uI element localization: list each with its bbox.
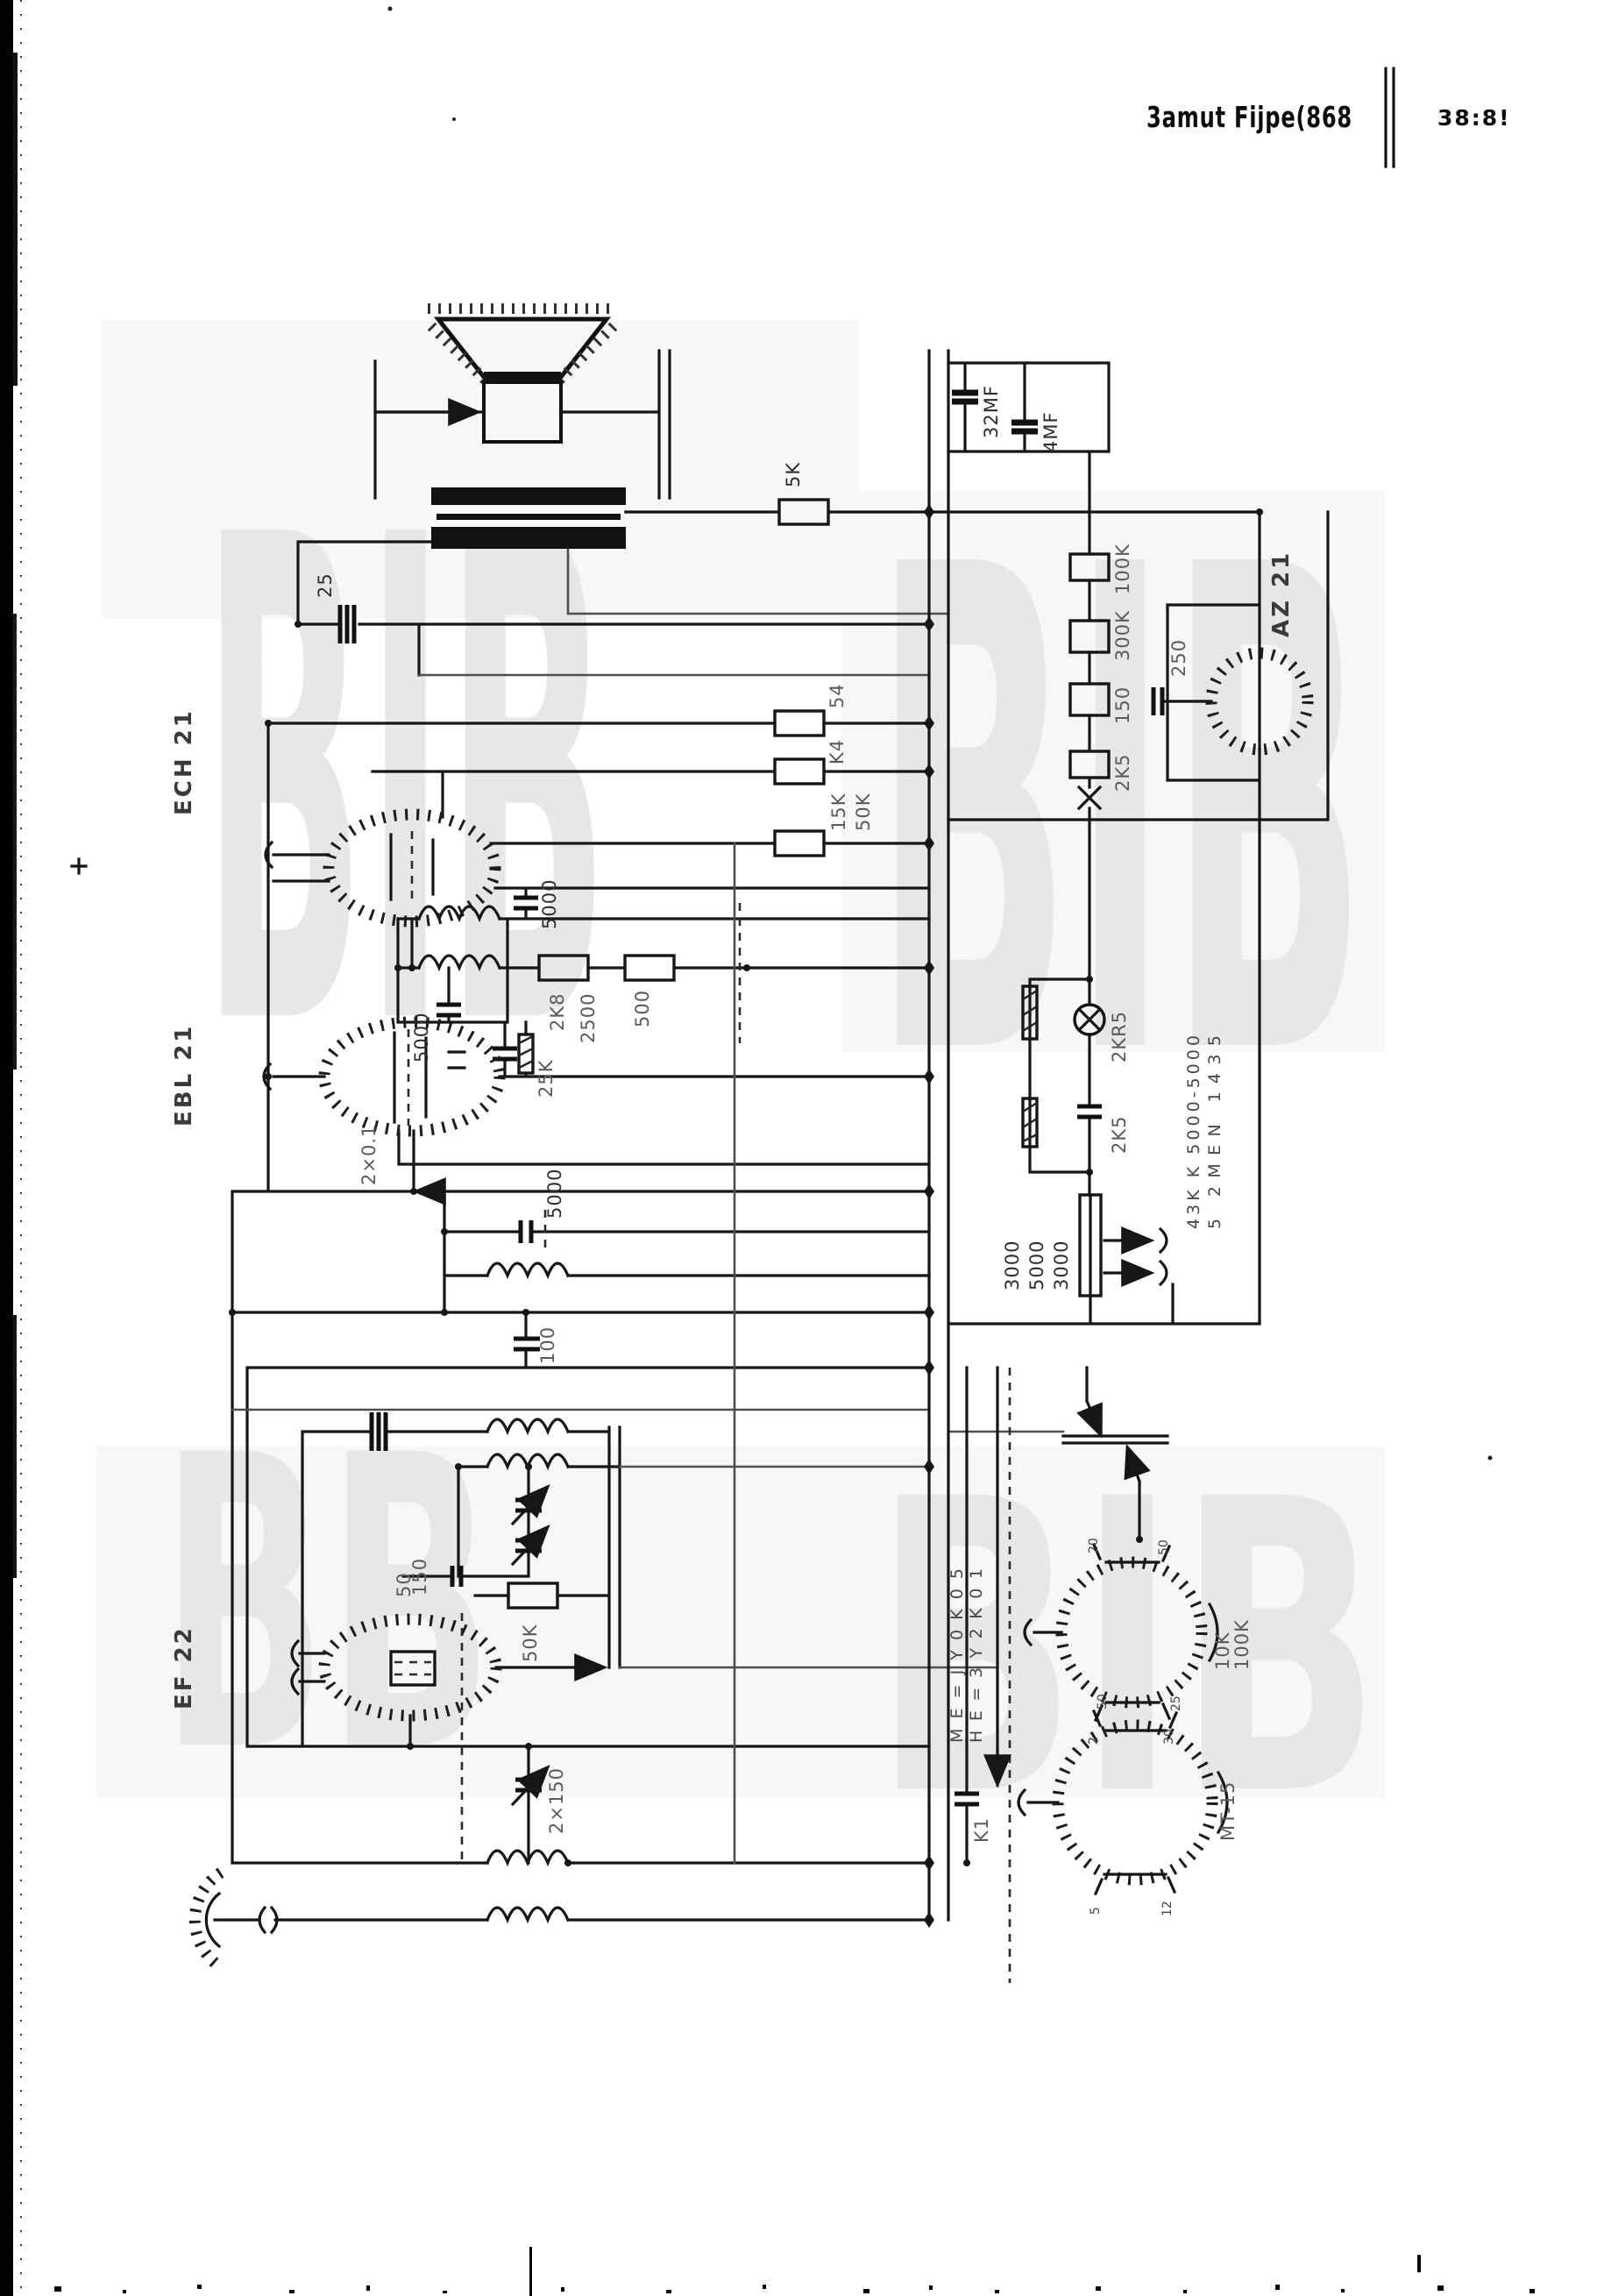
value-rect-cap: 250 (1168, 639, 1189, 677)
socket-b-pin2: 25 (1169, 1695, 1183, 1711)
socket-a-pin3: 2 (1087, 1737, 1101, 1745)
value-chain3: 150 (1112, 686, 1133, 724)
value-r50kb: 50K (520, 1624, 541, 1662)
tube2-label: EBL 21 (171, 1024, 197, 1127)
plus-speck (72, 859, 86, 873)
rectifier-label: AZ 21 (1268, 551, 1295, 637)
socket-b-pin3: 5 (1089, 1907, 1103, 1915)
socket-b-side: MT-15 (1217, 1781, 1238, 1841)
socket-a-pin1: 20 (1087, 1538, 1101, 1553)
value-c50: 50 (394, 1572, 415, 1597)
value-r15k: 15K (828, 793, 849, 831)
value-r2k8: 2K8 (547, 993, 568, 1032)
voltage-divider (1080, 1195, 1167, 1296)
value-chain4: 2K5 (1112, 754, 1133, 793)
value-c5000b: 5000 (411, 1013, 432, 1063)
value-rk4: K4 (827, 739, 848, 764)
socket-b-pin4: 12 (1160, 1901, 1175, 1916)
value-t2-cath: 2×0.1 (358, 1125, 380, 1185)
value-div3: 3000 (1051, 1240, 1072, 1290)
value-c2500: 2500 (578, 993, 599, 1043)
tube1-label: ECH 21 (171, 708, 197, 815)
header-page-number: 38:8! (1437, 105, 1511, 131)
value-r50k: 50K (853, 793, 874, 831)
tube3-label: EF 22 (171, 1625, 197, 1710)
socket-a-pin2: 50 (1157, 1539, 1171, 1555)
output-transformer (431, 487, 626, 549)
value-c100: 100 (537, 1326, 558, 1364)
scanned-schematic-page: BIB BIB BB BIB 3amut Fijpe(868 (0, 0, 1604, 2296)
legend-left-1: ME=JY0K05 (947, 1567, 967, 1743)
value-r500: 500 (632, 990, 653, 1027)
value-lamp: 2KR5 (1109, 1011, 1130, 1063)
header: 3amut Fijpe(868 38:8! (1146, 68, 1511, 167)
value-ec1: 32MF (981, 385, 1002, 438)
value-r25k: 25K (536, 1059, 557, 1098)
socket-a-side1: 10K (1212, 1631, 1233, 1670)
value-k1: K1 (971, 1817, 992, 1843)
value-c5000a: 5000 (539, 879, 560, 929)
socket-a-pin4: 30 (1162, 1729, 1176, 1745)
header-divider (1386, 68, 1394, 167)
bottom-noise (54, 2285, 1535, 2293)
watermark-bib-3: BB (160, 1371, 493, 1840)
value-cap-2k5: 2K5 (1109, 1116, 1130, 1155)
legend-right-1: 43K K 5000-5000 (1184, 1034, 1203, 1229)
value-div1: 3000 (1002, 1240, 1023, 1290)
socket-b-pin1: 50 (1096, 1694, 1110, 1710)
value-c5000c: 5000 (544, 1169, 565, 1219)
socket-a-side2: 100K (1231, 1619, 1253, 1670)
value-ec2: 4MF (1040, 411, 1061, 452)
header-title: 3amut Fijpe(868 (1146, 100, 1352, 134)
value-out-res: 5K (783, 462, 804, 487)
value-trim-top: 25 (315, 572, 336, 598)
value-chain1: 100K (1112, 544, 1133, 594)
value-chain2: 300K (1112, 610, 1133, 661)
value-c2x150: 2×150 (546, 1767, 567, 1834)
legend-left-2: HE=3Y2K01 (967, 1567, 986, 1743)
value-r54: 54 (827, 683, 848, 708)
value-div2: 5000 (1026, 1240, 1047, 1290)
